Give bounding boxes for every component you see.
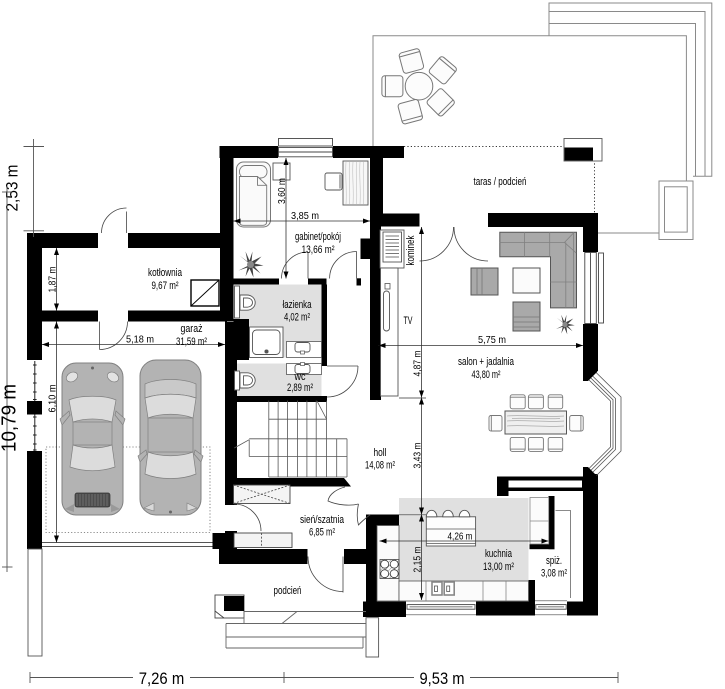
- svg-text:TV: TV: [404, 315, 413, 327]
- svg-text:13,66 m²: 13,66 m²: [302, 244, 335, 256]
- svg-text:kominek: kominek: [405, 235, 417, 265]
- svg-text:2,53 m: 2,53 m: [3, 165, 22, 212]
- svg-text:7,26 m: 7,26 m: [139, 669, 185, 688]
- svg-text:2,15 m: 2,15 m: [412, 546, 424, 572]
- svg-text:1,87 m: 1,87 m: [47, 266, 59, 292]
- svg-text:14,08 m²: 14,08 m²: [365, 460, 395, 472]
- svg-text:podcień: podcień: [274, 585, 302, 597]
- svg-text:holl: holl: [374, 447, 387, 459]
- svg-text:43,80 m²: 43,80 m²: [472, 369, 501, 381]
- svg-text:kotłownia: kotłownia: [148, 267, 183, 279]
- svg-text:kuchnia: kuchnia: [485, 548, 513, 560]
- svg-text:taras / podcień: taras / podcień: [474, 176, 527, 188]
- svg-text:4,87 m: 4,87 m: [412, 350, 424, 376]
- svg-text:5,75 m: 5,75 m: [478, 334, 506, 346]
- svg-text:3,08 m²: 3,08 m²: [541, 568, 567, 580]
- svg-text:gabinet/pokój: gabinet/pokój: [295, 231, 341, 243]
- svg-text:sień/szatnia: sień/szatnia: [300, 514, 345, 526]
- svg-text:salon + jadalnia: salon + jadalnia: [458, 356, 515, 368]
- svg-text:3,60 m: 3,60 m: [276, 178, 288, 204]
- svg-text:2,89 m²: 2,89 m²: [287, 382, 313, 394]
- svg-text:13,00 m²: 13,00 m²: [483, 561, 514, 573]
- svg-text:10,79 m: 10,79 m: [0, 384, 21, 452]
- svg-text:9,67 m²: 9,67 m²: [152, 280, 179, 292]
- svg-text:9,53 m: 9,53 m: [420, 669, 465, 688]
- svg-text:3,85 m: 3,85 m: [291, 210, 319, 222]
- svg-text:4,26 m: 4,26 m: [448, 531, 473, 543]
- svg-text:5,18 m: 5,18 m: [126, 334, 154, 346]
- svg-text:6,85 m²: 6,85 m²: [309, 527, 335, 539]
- svg-text:6,10 m: 6,10 m: [47, 384, 59, 412]
- svg-text:4,02 m²: 4,02 m²: [284, 312, 310, 324]
- svg-text:3,43 m: 3,43 m: [412, 442, 424, 468]
- svg-text:31,59 m²: 31,59 m²: [176, 336, 207, 348]
- svg-text:garaż: garaż: [181, 323, 203, 335]
- svg-text:spiż.: spiż.: [546, 555, 562, 567]
- svg-text:łazienka: łazienka: [283, 299, 313, 311]
